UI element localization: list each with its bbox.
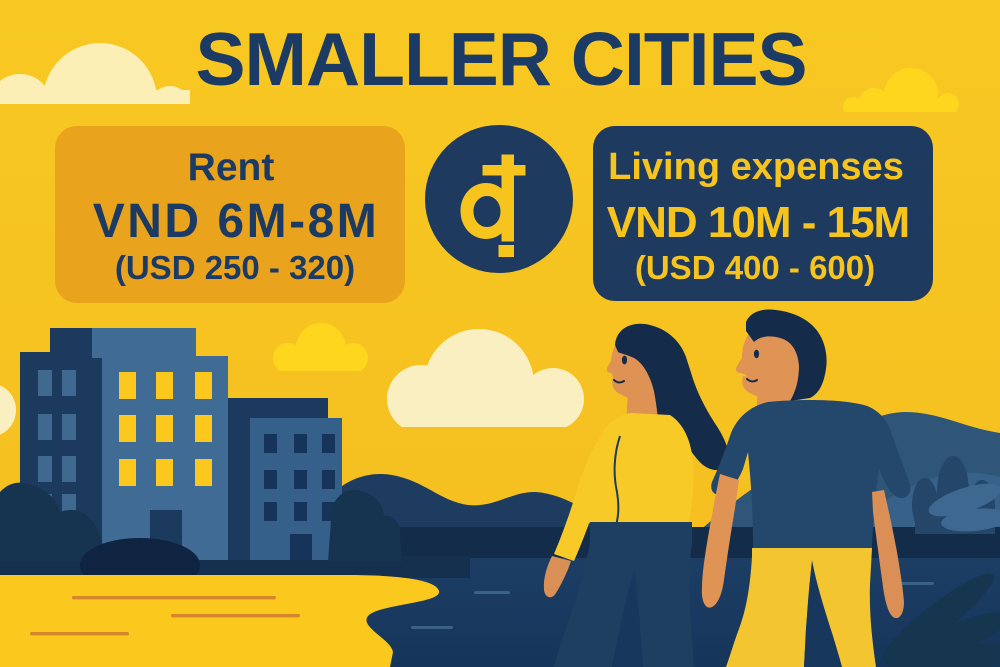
svg-text:(USD 400 - 600): (USD 400 - 600) bbox=[635, 249, 875, 286]
svg-text:(USD 250 - 320): (USD 250 - 320) bbox=[115, 249, 355, 286]
svg-text:VND 10M - 15M: VND 10M - 15M bbox=[607, 198, 909, 247]
svg-text:SMALLER CITIES: SMALLER CITIES bbox=[195, 17, 806, 101]
svg-text:VND 6M-8M: VND 6M-8M bbox=[93, 195, 380, 248]
svg-text:Rent: Rent bbox=[188, 146, 275, 189]
svg-text:Living expenses: Living expenses bbox=[608, 146, 904, 188]
